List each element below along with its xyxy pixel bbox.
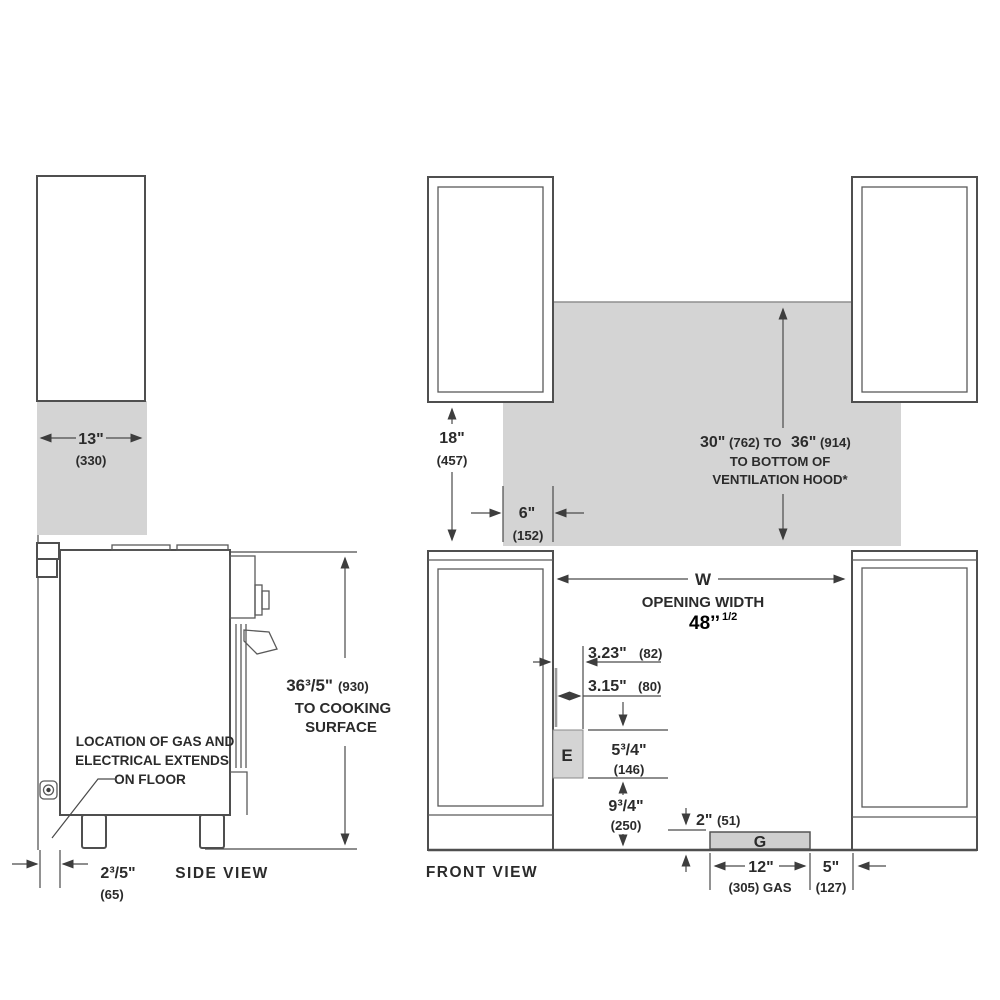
hood-dim-762-to: (762) TO	[729, 435, 782, 450]
hood-dim-line2: TO BOTTOM OF	[730, 454, 831, 469]
dim-975-in: 9³/4"	[608, 798, 643, 815]
gas-note-line1: LOCATION OF GAS AND	[76, 734, 235, 749]
upper-left-cabinet	[428, 177, 553, 402]
opening-width-label: OPENING WIDTH	[642, 594, 765, 611]
hood-dim-36: 36"	[791, 434, 816, 451]
dim-12-in: 12"	[748, 859, 773, 876]
dim-12-mm: (305) GAS	[728, 880, 791, 895]
dim-12in: 12" (305) GAS	[710, 853, 810, 895]
front-gray-wall-area	[503, 302, 901, 546]
diagram-canvas: 13" (330)	[0, 0, 1000, 1000]
knob-stem	[255, 585, 262, 615]
dim-5-mm: (127)	[816, 880, 847, 895]
dim-2-mm: (51)	[717, 813, 740, 828]
dim-323-in: 3.23"	[588, 645, 627, 662]
lower-right-cabinet	[852, 551, 977, 850]
dim-36-line2: TO COOKING	[295, 700, 391, 717]
dim-575-mm: (146)	[614, 762, 645, 777]
dim-5-in: 5"	[823, 859, 839, 876]
side-view-label: SIDE VIEW	[175, 865, 269, 882]
dim-2-in: 2"	[696, 812, 712, 829]
front-view-label: FRONT VIEW	[426, 864, 538, 881]
dim-2-3-5in: 2³/5" (65)	[12, 850, 136, 902]
upper-right-cabinet	[852, 177, 977, 402]
dim-9-3-4in: 9³/4" (250)	[608, 798, 643, 845]
dim-36-in: 36³/5"	[286, 676, 333, 695]
dim-18in: 18" (457)	[437, 409, 468, 540]
opening-width-symbol: W	[695, 570, 712, 589]
dim-26-in: 2³/5"	[100, 865, 135, 882]
hood-dim-30: 30"	[700, 434, 725, 451]
dim-36-mm: (930)	[338, 679, 369, 694]
side-gray-wall-area	[37, 401, 147, 535]
dim-18-mm: (457)	[437, 453, 468, 468]
lower-left-cabinet	[428, 551, 553, 850]
hood-dim-line3: VENTILATION HOOD*	[712, 472, 848, 487]
dim-323-mm: (82)	[639, 646, 662, 661]
gas-note-line3: ON FLOOR	[114, 772, 186, 787]
dim-5in: 5" (127)	[816, 853, 886, 895]
dim-6-mm: (152)	[513, 528, 544, 543]
dim-975-mm: (250)	[611, 818, 642, 833]
knob-cap	[262, 591, 269, 609]
dim-18-in: 18"	[439, 430, 464, 447]
dim-315-mm: (80)	[638, 679, 661, 694]
opening-width-value: 48’’	[689, 613, 720, 634]
dim-36in: 36³/5" (930) TO COOKING SURFACE	[230, 552, 391, 844]
installation-diagram: 13" (330)	[0, 0, 1000, 1000]
range-leg-front	[200, 815, 224, 848]
gas-box-label: G	[754, 834, 766, 851]
dim-575-in: 5³/4"	[611, 742, 646, 759]
dim-26-mm: (65)	[100, 887, 123, 902]
door-handle	[244, 630, 277, 654]
dim-5-3-4in: 5³/4" (146)	[588, 702, 668, 795]
dim-36-line3: SURFACE	[305, 719, 377, 736]
range-side-profile	[60, 545, 277, 848]
gas-electrical-symbol	[40, 781, 57, 799]
drawer-line	[230, 772, 247, 815]
control-panel	[230, 556, 255, 618]
range-leg-back	[82, 815, 106, 848]
opening-width-value-fraction: 1/2	[722, 611, 737, 623]
anti-tip-bracket	[37, 543, 59, 577]
dim-3-15in: 3.15" (80)	[559, 678, 661, 696]
side-upper-cabinet	[37, 176, 145, 401]
dim-13-in: 13"	[78, 431, 103, 448]
dim-opening-width: W OPENING WIDTH 48’’ 1/2	[558, 570, 844, 634]
dim-13-mm: (330)	[76, 453, 107, 468]
electrical-box-label: E	[561, 746, 572, 765]
dim-315-in: 3.15"	[588, 678, 627, 695]
hood-dim-914: (914)	[820, 435, 851, 450]
side-view: 13" (330)	[12, 176, 391, 902]
front-view: 18" (457) 6" (152) 30" (762) TO 36" (914…	[426, 177, 977, 895]
gas-note-line2: ELECTRICAL EXTENDS	[75, 753, 229, 768]
dim-6-in: 6"	[519, 505, 535, 522]
